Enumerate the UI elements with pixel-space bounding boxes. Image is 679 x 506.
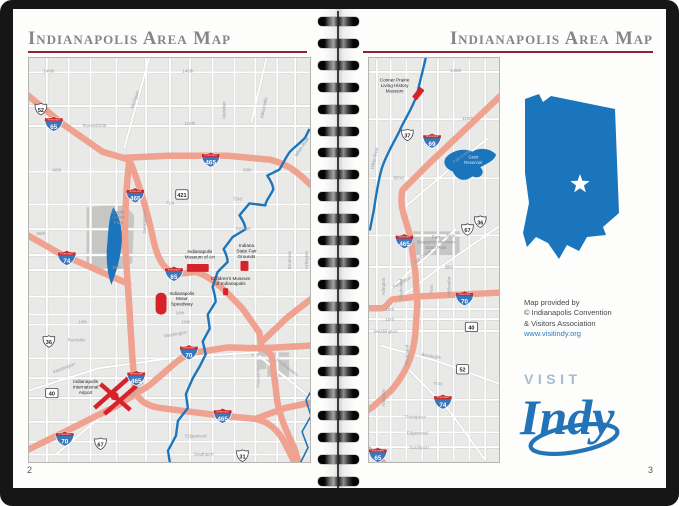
box-shield: 52 (456, 365, 468, 374)
svg-text:INTERSTATE: INTERSTATE (183, 347, 196, 350)
svg-text:INTERSTATE: INTERSTATE (459, 293, 472, 296)
credit-line: Map provided by (524, 298, 656, 308)
spiral-ring (318, 170, 359, 179)
us-shield: 67 (95, 438, 107, 450)
box-shield: 40 (465, 322, 477, 331)
spiral-ring (318, 455, 359, 464)
svg-text:65: 65 (374, 455, 382, 462)
map-credits: Map provided by © Indianapolis Conventio… (524, 298, 656, 339)
svg-text:52: 52 (459, 368, 465, 374)
street-label: 146th (43, 68, 55, 73)
us-shield: 36 (43, 336, 55, 348)
left-map-panel: 146th146thRussell/206116th86th86thMichig… (28, 57, 311, 463)
visit-indy-logo: Indy (512, 382, 637, 460)
spiral-ring (318, 367, 359, 376)
street-label: 146th (450, 68, 462, 73)
svg-text:67: 67 (97, 442, 103, 448)
street-label: 73rd (233, 196, 243, 201)
right-map-svg: 146th116th82ndFall Creek56thFall Creek38… (369, 58, 499, 462)
spiral-ring (318, 411, 359, 420)
svg-text:69: 69 (429, 141, 437, 148)
svg-text:INTERSTATE: INTERSTATE (398, 236, 411, 239)
poi-marker (240, 261, 248, 271)
spiral-ring (318, 324, 359, 333)
street-label: Mitthoefer (447, 276, 452, 297)
svg-text:INTERSTATE: INTERSTATE (168, 268, 181, 271)
street-label: 116th (184, 121, 196, 126)
street-label: 16th (385, 307, 394, 312)
poi-label: IndianaState FairGrounds (236, 243, 257, 259)
street-label: Washington (374, 329, 398, 334)
street-label: Shadeland (404, 344, 409, 366)
poi-label: Children's Museumof Indianapolis (211, 276, 251, 286)
svg-text:INTERSTATE: INTERSTATE (61, 252, 74, 255)
spiral-ring (318, 389, 359, 398)
right-page-number: 3 (648, 465, 653, 475)
left-title-rule (28, 51, 307, 53)
spiral-ring (318, 346, 359, 355)
map-book-photo: Indianapolis Area Map 146th146thRussell/… (0, 0, 679, 506)
svg-text:465: 465 (205, 160, 216, 167)
street-label: 16th (175, 311, 184, 316)
street-label: Washington (52, 361, 76, 375)
interstate-shield: INTERSTATE74 (58, 251, 76, 266)
spiral-ring (318, 105, 359, 114)
street-label: Southport (194, 452, 214, 457)
street-label: 56th (36, 231, 45, 236)
street-label: 10th (78, 320, 87, 325)
svg-text:37: 37 (404, 134, 410, 140)
street-label: Emerson (287, 250, 292, 269)
right-map-panel: 146th116th82ndFall Creek56thFall Creek38… (368, 57, 500, 463)
interstate-shield: INTERSTATE70 (56, 431, 74, 446)
spiral-ring (318, 302, 359, 311)
svg-text:INTERSTATE: INTERSTATE (205, 154, 218, 157)
interstate-shield: INTERSTATE65 (165, 267, 183, 282)
indiana-state-graphic (515, 85, 640, 270)
right-highways (369, 94, 499, 462)
indiana-outline (523, 94, 619, 259)
indy-wordmark: Indy (519, 389, 615, 445)
spiral-ring (318, 148, 359, 157)
street-label: 86th (52, 168, 61, 173)
credit-line: & Visitors Association (524, 319, 656, 329)
street-label: Kessler (236, 226, 252, 231)
street-label: Post (429, 284, 434, 294)
street-label: Rockville (68, 337, 87, 342)
spiral-ring (318, 258, 359, 267)
us-shield: 37 (402, 129, 414, 141)
box-shield: 40 (46, 388, 58, 397)
us-shield: 31 (237, 450, 249, 462)
svg-text:67: 67 (464, 228, 470, 234)
visitindy-link[interactable]: www.visitindy.org (524, 329, 656, 339)
spiral-ring (318, 83, 359, 92)
spiral-ring (318, 236, 359, 245)
street-label: Arlington (381, 277, 386, 295)
box-shield: 421 (176, 190, 188, 199)
street-label: Edgewood (185, 434, 207, 439)
svg-text:INTERSTATE: INTERSTATE (437, 396, 450, 399)
poi-marker (223, 288, 228, 295)
svg-text:465: 465 (217, 416, 228, 423)
svg-text:65: 65 (50, 124, 58, 131)
street-label: Washington (164, 329, 189, 338)
svg-text:465: 465 (399, 241, 410, 248)
spiral-ring (318, 214, 359, 223)
interstate-shield: INTERSTATE465 (202, 152, 220, 167)
svg-text:INTERSTATE: INTERSTATE (372, 449, 385, 452)
street-label: Shadeland (398, 278, 403, 300)
svg-text:INTERSTATE: INTERSTATE (48, 118, 61, 121)
left-page-title: Indianapolis Area Map (28, 29, 231, 50)
svg-text:465: 465 (131, 378, 142, 385)
svg-text:65: 65 (170, 274, 178, 281)
street-label: 56th (446, 233, 455, 238)
credit-line: © Indianapolis Convention (524, 308, 656, 318)
poi-label: IndianapolisInternationalAirport (73, 379, 99, 395)
us-shield: 67 (462, 224, 474, 236)
street-label: Arlington (304, 251, 309, 269)
street-label: Keystone (255, 368, 260, 387)
street-label: 38th (112, 265, 121, 270)
street-label: Edgewood (407, 430, 429, 435)
svg-text:74: 74 (63, 258, 71, 265)
svg-text:INTERSTATE: INTERSTATE (129, 190, 142, 193)
svg-text:52: 52 (38, 108, 44, 114)
left-map-svg: 146th146thRussell/206116th86th86thMichig… (29, 58, 310, 462)
street-label: Meridian (222, 101, 227, 119)
spiral-ring (318, 433, 359, 442)
street-label: Russell/206 (83, 123, 107, 128)
street-label: Georgetown (142, 208, 147, 233)
street-label: Southport (409, 445, 429, 450)
street-label: 146th (182, 68, 194, 73)
street-label: 38th (444, 265, 453, 270)
svg-text:70: 70 (61, 439, 69, 446)
poi-marker (187, 264, 209, 272)
svg-text:40: 40 (468, 325, 474, 331)
street-label: 10th (385, 317, 394, 322)
right-page-title: Indianapolis Area Map (363, 29, 653, 50)
street-label: 86th (243, 168, 252, 173)
street-label: 10th (181, 320, 190, 325)
street-label: 116th (462, 116, 473, 121)
svg-text:70: 70 (461, 298, 469, 305)
spiral-ring (318, 127, 359, 136)
street-label: 71st (166, 200, 175, 205)
svg-text:70: 70 (185, 352, 193, 359)
svg-text:36: 36 (46, 340, 52, 346)
street-label: 82nd (394, 175, 405, 180)
svg-text:INTERSTATE: INTERSTATE (130, 373, 143, 376)
svg-text:INTERSTATE: INTERSTATE (426, 135, 439, 138)
svg-text:465: 465 (130, 195, 141, 202)
svg-text:40: 40 (49, 391, 55, 397)
svg-text:36: 36 (477, 220, 483, 226)
svg-text:31: 31 (239, 454, 245, 460)
left-page-number: 2 (27, 465, 32, 475)
spiral-ring (318, 39, 359, 48)
spiral-ring (318, 192, 359, 201)
poi-label: IndianapolisMuseum of Art (185, 249, 216, 259)
svg-text:INTERSTATE: INTERSTATE (59, 433, 72, 436)
spiral-ring (318, 17, 359, 26)
street-label: Thompson (405, 415, 427, 420)
svg-text:74: 74 (439, 402, 447, 409)
svg-text:421: 421 (177, 193, 186, 199)
right-title-rule (363, 51, 653, 53)
spiral-ring (318, 477, 359, 486)
spiral-ring (318, 61, 359, 70)
svg-text:INTERSTATE: INTERSTATE (217, 410, 230, 413)
poi-marker (156, 293, 167, 315)
street-label: Troy (434, 381, 444, 386)
spiral-ring (318, 280, 359, 289)
street-label: Arlington (381, 388, 386, 406)
